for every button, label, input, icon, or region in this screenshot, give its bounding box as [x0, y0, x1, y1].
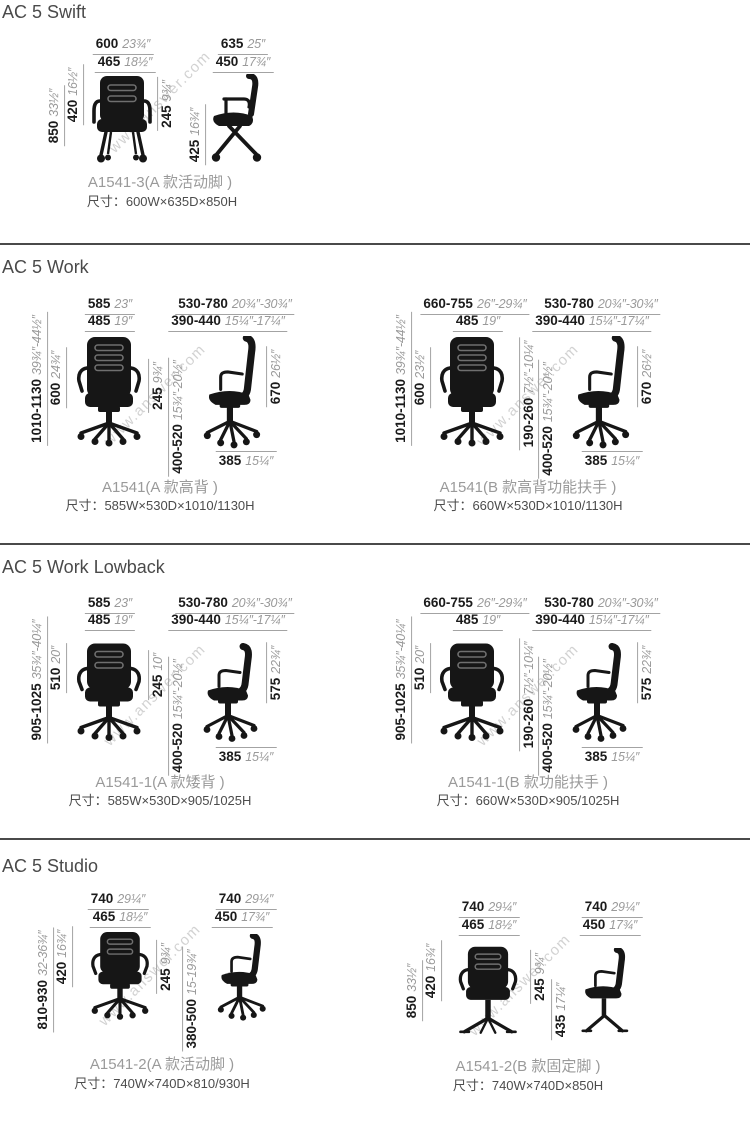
dim-seat-depth-range: 390-44015¼″-17¼″ [168, 613, 287, 631]
dim-mm: 740 [585, 899, 608, 914]
dim-inch: 20″ [49, 646, 63, 664]
dim-inch: 20″ [413, 646, 427, 664]
dim-seat-depth: 45017¾″ [212, 910, 273, 928]
dim-inch: 7½″-10¼″ [522, 642, 536, 695]
chair-front-illustration [437, 640, 507, 747]
dim-mm: 635 [221, 36, 244, 51]
dim-back-height: 60023½″ [413, 348, 431, 409]
dim-inch: 29¼″ [488, 900, 516, 914]
dim-inch: 35¾″-40¼″ [30, 620, 44, 680]
dim-arm-height: 2459¾″ [156, 940, 174, 994]
figure-caption: A1541(A 款高背 ) [102, 476, 218, 497]
dim-base-depth: 38515¼″ [582, 747, 643, 765]
dim-inch: 15¾″-20½″ [171, 659, 185, 719]
dim-mm: 810-930 [35, 980, 50, 1030]
dim-back-height: 51020″ [413, 643, 431, 693]
dim-inch: 15¾″-20½″ [171, 360, 185, 420]
dim-inch: 15¼″-17¼″ [225, 314, 285, 328]
dim-mm: 390-440 [171, 612, 221, 627]
dim-mm: 390-440 [535, 612, 585, 627]
dim-mm: 400-520 [170, 424, 185, 474]
dim-mm: 740 [462, 899, 485, 914]
dim-mm: 400-520 [540, 723, 555, 773]
dim-mm: 485 [88, 612, 111, 627]
dim-seat-depth-range: 390-44015¼″-17¼″ [532, 314, 651, 332]
dim-inch: 19″ [482, 314, 500, 328]
dim-inch: 18½″ [488, 918, 516, 932]
dim-mm: 245 [150, 387, 165, 410]
dim-mm: 385 [585, 749, 608, 764]
dim-mm: 420 [423, 976, 438, 999]
dim-mm: 530-780 [178, 296, 228, 311]
dim-mm: 510 [412, 668, 427, 691]
dim-inch: 29¼″ [117, 892, 145, 906]
dim-mm: 400-520 [170, 723, 185, 773]
dim-seat-width: 48519″ [85, 613, 135, 631]
dim-seat-depth: 45017¾″ [213, 55, 274, 73]
chair-front-illustration [74, 640, 144, 747]
chair-side-illustration [202, 336, 264, 449]
dim-seat-width: 46518½″ [459, 918, 520, 936]
dim-mm: 1010-1130 [29, 379, 44, 443]
dim-mm: 510 [48, 668, 63, 691]
dim-inch: 20¾″-30¾″ [598, 596, 658, 610]
dim-mm: 385 [219, 453, 242, 468]
dim-overall-height: 1010-113039¾″-44½″ [394, 312, 412, 446]
dim-inch: 32-36¾″ [36, 931, 50, 976]
dim-inch: 16¾″ [55, 930, 69, 958]
dim-mm: 465 [93, 909, 116, 924]
dim-back-height: 60024¾″ [49, 348, 67, 409]
dim-overall-width: 60023¾″ [93, 37, 154, 55]
dim-mm: 400-520 [540, 426, 555, 476]
dim-seat-width: 48519″ [453, 314, 503, 332]
dim-inch: 15¼″ [245, 750, 273, 764]
dim-seat-height: 43517¼″ [551, 980, 569, 1041]
chair-front-illustration [74, 336, 144, 448]
dim-inch: 16½″ [66, 68, 80, 96]
chair-side-illustration [571, 641, 633, 748]
figure-size: 尺寸：740W×740D×850H [453, 1075, 603, 1094]
dim-mm: 245 [532, 978, 547, 1001]
dim-inch: 15¼″-17¼″ [589, 613, 649, 627]
dim-inch: 17¼″ [554, 983, 568, 1011]
dim-inch: 19″ [114, 613, 132, 627]
chair-side-illustration [202, 641, 264, 748]
dim-inch: 7½″-10¼″ [522, 341, 536, 394]
figure-size: 尺寸：585W×530D×905/1025H [69, 790, 252, 809]
dim-mm: 585 [88, 595, 111, 610]
dim-inch: 20¾″-30¾″ [598, 297, 658, 311]
dim-mm: 465 [98, 54, 121, 69]
dim-inch: 23″ [114, 596, 132, 610]
dim-overall-depth: 74029¼″ [216, 892, 277, 910]
dim-inch: 33½″ [47, 89, 61, 117]
dim-mm: 390-440 [535, 313, 585, 328]
section-divider [0, 243, 750, 245]
dim-mm: 575 [639, 678, 654, 701]
section-divider [0, 838, 750, 840]
figure-caption: A1541-1(A 款矮背 ) [95, 771, 224, 792]
dim-inch: 9¾″ [533, 953, 547, 974]
dim-mm: 905-1025 [29, 683, 44, 740]
dim-inch: 17¾″ [241, 910, 269, 924]
figure-caption: A1541-1(B 款功能扶手 ) [448, 771, 608, 792]
dim-overall-height: 810-93032-36¾″ [36, 928, 54, 1033]
dim-mm: 600 [48, 383, 63, 406]
dim-inch: 15¼″-17¼″ [225, 613, 285, 627]
figure-caption: A1541-2(B 款固定脚 ) [455, 1055, 600, 1076]
figure-size: 尺寸：660W×530D×1010/1130H [433, 495, 622, 514]
dim-seat-height-range: 400-52015¾″-20½″ [168, 357, 186, 476]
dim-seat-height-range: 380-50015-19¾″ [182, 947, 200, 1052]
dim-backrest-height: 67026½″ [266, 347, 284, 408]
section-title: AC 5 Swift [2, 2, 86, 23]
dim-inch: 9¾″ [159, 943, 173, 964]
figure-caption: A1541-3(A 款活动脚 ) [88, 171, 232, 192]
dim-inch: 9¾″ [151, 362, 165, 383]
dim-arm-height: 2459¾″ [530, 950, 548, 1004]
dim-inch: 15¼″ [611, 750, 639, 764]
chair-spec-sheet: AC 5 Swift www.answer.com 60023¾″ 46518½… [0, 0, 750, 1138]
dim-inch: 17¾″ [609, 918, 637, 932]
dim-seat-depth-range: 390-44015¼″-17¼″ [168, 314, 287, 332]
dim-mm: 245 [159, 105, 174, 128]
dim-inch: 10″ [151, 653, 165, 671]
dim-inch: 29¼″ [245, 892, 273, 906]
dim-inch: 25″ [247, 37, 265, 51]
dim-inch: 18½″ [119, 910, 147, 924]
dim-seat-width: 46518½″ [90, 910, 151, 928]
dim-mm: 450 [216, 54, 239, 69]
dim-arm-height: 2459¾″ [148, 359, 166, 413]
dim-arm-height-range: 190-2607½″-10¼″ [519, 338, 537, 451]
dim-mm: 670 [268, 382, 283, 405]
dim-mm: 420 [54, 962, 69, 985]
figure-caption: A1541-2(A 款活动脚 ) [90, 1053, 234, 1074]
dim-mm: 660-755 [423, 595, 473, 610]
dim-inch: 23½″ [413, 351, 427, 379]
dim-base-depth: 38515¼″ [216, 451, 277, 469]
dim-overall-width: 74029¼″ [88, 892, 149, 910]
dim-inch: 20¾″-30¾″ [232, 297, 292, 311]
dim-mm: 600 [412, 383, 427, 406]
dim-back-height: 51020″ [49, 643, 67, 693]
dim-overall-height: 905-102535¾″-40¼″ [30, 617, 48, 744]
chair-front-illustration [87, 932, 153, 1022]
dim-arm-height: 24510″ [148, 650, 166, 700]
dim-backrest-height: 57522¾″ [266, 643, 284, 704]
dim-inch: 39¾″-44½″ [394, 315, 408, 375]
dim-seat-depth-range: 390-44015¼″-17¼″ [532, 613, 651, 631]
dim-mm: 435 [553, 1015, 568, 1038]
dim-overall-height: 905-102535¾″-40¼″ [394, 617, 412, 744]
dim-back-height: 42016¾″ [424, 941, 442, 1002]
dim-inch: 9¾″ [160, 80, 174, 101]
dim-mm: 190-260 [521, 699, 536, 749]
dim-inch: 24¾″ [49, 351, 63, 379]
dim-overall-height: 85033½″ [405, 961, 423, 1022]
section-title: AC 5 Work [2, 257, 89, 278]
dim-seat-height-range: 400-52015¾″-20½″ [538, 656, 556, 775]
dim-mm: 530-780 [178, 595, 228, 610]
section-title: AC 5 Work Lowback [2, 557, 165, 578]
dim-inch: 23″ [114, 297, 132, 311]
dim-overall-width: 74029¼″ [459, 900, 520, 918]
dim-mm: 485 [456, 612, 479, 627]
dim-mm: 600 [96, 36, 119, 51]
dim-overall-height: 85033½″ [47, 86, 65, 147]
dim-seat-width: 48519″ [453, 613, 503, 631]
figure-size: 尺寸：660W×530D×905/1025H [437, 790, 620, 809]
dim-mm: 385 [585, 453, 608, 468]
dim-inch: 20¾″-30¾″ [232, 596, 292, 610]
dim-mm: 245 [150, 675, 165, 698]
dim-inch: 22¾″ [269, 646, 283, 674]
figure-size: 尺寸：740W×740D×810/930H [74, 1073, 250, 1092]
chair-side-illustration [571, 336, 633, 449]
dim-mm: 740 [91, 891, 114, 906]
section-divider [0, 543, 750, 545]
dim-inch: 26″-29¾″ [477, 596, 527, 610]
chair-side-illustration [204, 74, 270, 163]
dim-inch: 33½″ [405, 964, 419, 992]
dim-backrest-height: 57522¾″ [637, 643, 655, 704]
figure-size: 尺寸：585W×530D×1010/1130H [65, 495, 254, 514]
dim-mm: 740 [219, 891, 242, 906]
dim-mm: 530-780 [544, 296, 594, 311]
chair-front-illustration [437, 336, 507, 448]
dim-mm: 390-440 [171, 313, 221, 328]
dim-inch: 19″ [482, 613, 500, 627]
dim-mm: 385 [219, 749, 242, 764]
dim-mm: 660-755 [423, 296, 473, 311]
dim-inch: 22¾″ [640, 646, 654, 674]
dim-mm: 420 [65, 100, 80, 123]
dim-inch: 26½″ [269, 350, 283, 378]
dim-mm: 670 [639, 382, 654, 405]
dim-inch: 26½″ [640, 350, 654, 378]
dim-inch: 15¼″ [611, 454, 639, 468]
dim-inch: 35¾″-40¼″ [394, 620, 408, 680]
dim-mm: 850 [46, 121, 61, 144]
dim-mm: 380-500 [184, 999, 199, 1049]
dim-seat-height-range: 400-52015¾″-20½″ [538, 359, 556, 478]
dim-inch: 15¼″-17¼″ [589, 314, 649, 328]
dim-arm-height-range: 190-2607½″-10¼″ [519, 639, 537, 752]
dim-inch: 15-19¾″ [185, 950, 199, 995]
dim-mm: 485 [456, 313, 479, 328]
dim-seat-depth: 45017¾″ [580, 918, 641, 936]
dim-inch: 19″ [114, 314, 132, 328]
figure-caption: A1541(B 款高背功能扶手 ) [440, 476, 617, 497]
dim-mm: 530-780 [544, 595, 594, 610]
dim-arm-height: 2459¾″ [157, 77, 175, 131]
dim-base-depth: 38515¼″ [216, 747, 277, 765]
dim-mm: 450 [583, 917, 606, 932]
dim-backrest-height: 67026½″ [637, 347, 655, 408]
dim-mm: 1010-1130 [393, 379, 408, 443]
dim-inch: 23¾″ [122, 37, 150, 51]
dim-inch: 15¾″-20½″ [541, 362, 555, 422]
dim-inch: 26″-29¾″ [477, 297, 527, 311]
dim-overall-depth: 63525″ [218, 37, 268, 55]
chair-front-illustration [456, 946, 520, 1039]
dim-seat-width: 48519″ [85, 314, 135, 332]
dim-mm: 585 [88, 296, 111, 311]
dim-back-height: 42016¾″ [55, 927, 73, 988]
dim-mm: 465 [462, 917, 485, 932]
section-title: AC 5 Studio [2, 856, 98, 877]
dim-overall-height: 1010-113039¾″-44½″ [30, 312, 48, 446]
dim-back-height: 42016½″ [66, 65, 84, 126]
dim-mm: 905-1025 [393, 683, 408, 740]
dim-inch: 16¾″ [424, 944, 438, 972]
dim-seat-height-range: 400-52015¾″-20½″ [168, 656, 186, 775]
dim-mm: 485 [88, 313, 111, 328]
dim-base-depth: 38515¼″ [582, 451, 643, 469]
chair-front-illustration [92, 76, 152, 164]
dim-mm: 190-260 [521, 398, 536, 448]
dim-overall-depth: 74029¼″ [582, 900, 643, 918]
dim-inch: 39¾″-44½″ [30, 315, 44, 375]
dim-mm: 850 [404, 996, 419, 1019]
dim-inch: 16¾″ [188, 108, 202, 136]
dim-seat-width: 46518½″ [95, 55, 156, 73]
dim-mm: 575 [268, 678, 283, 701]
dim-mm: 450 [215, 909, 238, 924]
chair-side-illustration [212, 934, 276, 1023]
dim-inch: 29¼″ [611, 900, 639, 914]
dim-mm: 425 [187, 140, 202, 163]
figure-size: 尺寸：600W×635D×850H [87, 191, 237, 210]
chair-side-illustration [576, 948, 640, 1038]
dim-inch: 18½″ [124, 55, 152, 69]
dim-inch: 15¼″ [245, 454, 273, 468]
dim-inch: 17¾″ [242, 55, 270, 69]
dim-mm: 245 [158, 968, 173, 991]
dim-inch: 15¾″-20½″ [541, 659, 555, 719]
